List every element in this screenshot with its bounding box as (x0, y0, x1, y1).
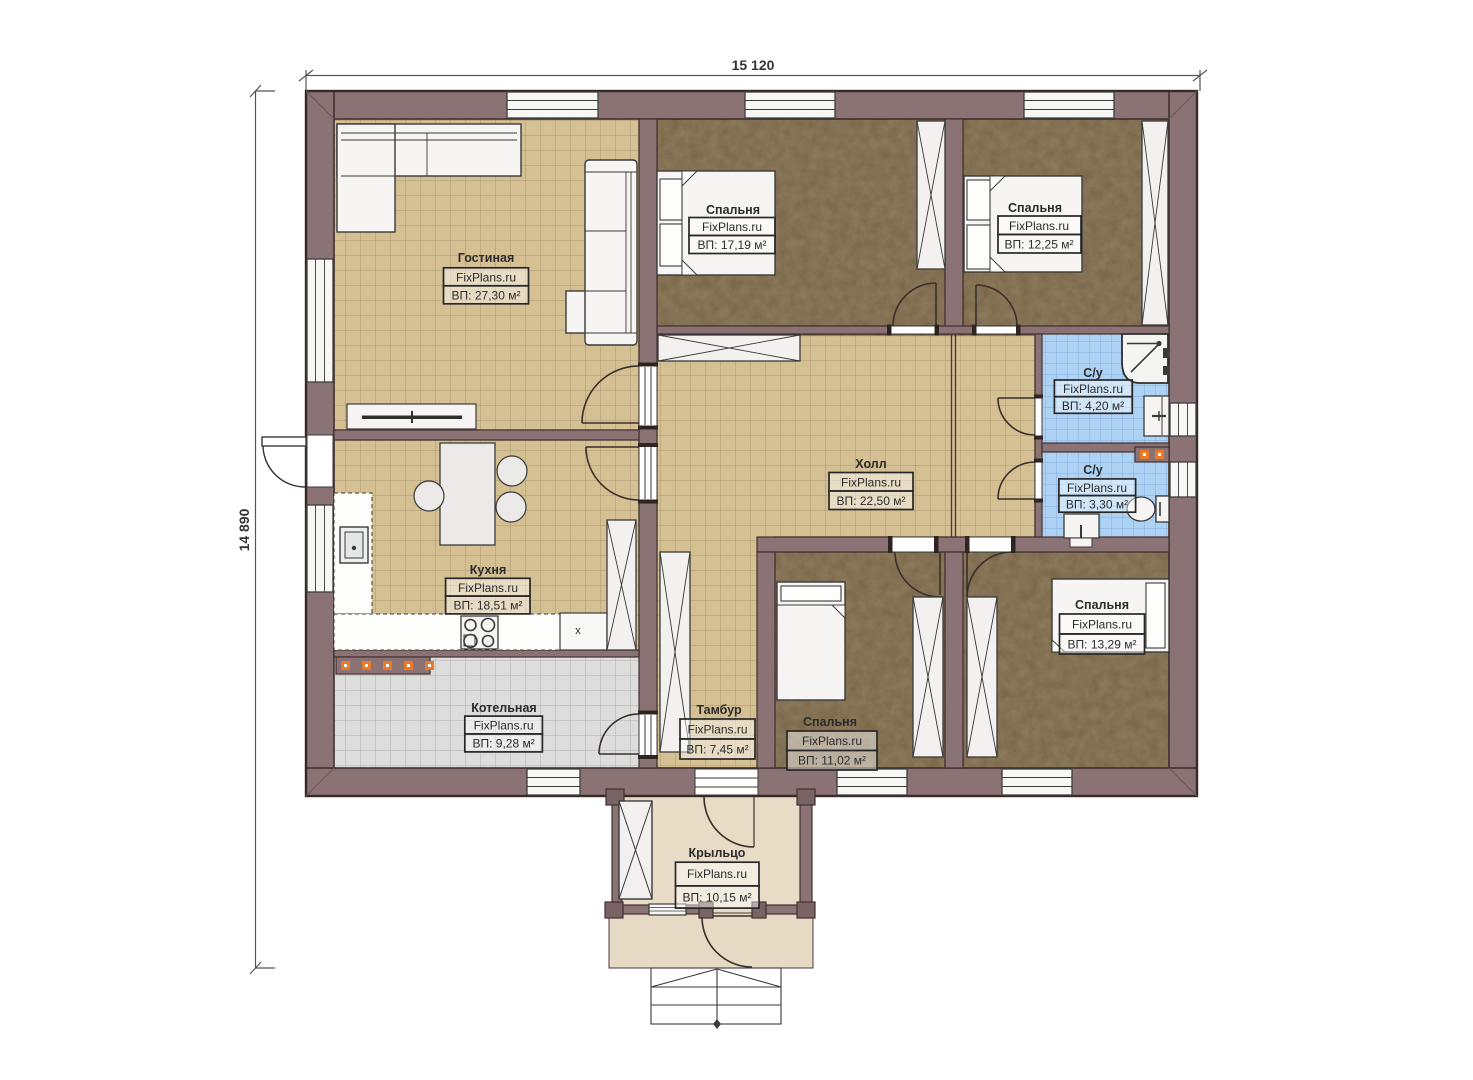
svg-text:ВП: 12,25 м²: ВП: 12,25 м² (1005, 238, 1074, 252)
svg-text:FixPlans.ru: FixPlans.ru (474, 719, 534, 733)
svg-text:Тамбур: Тамбур (696, 703, 742, 717)
svg-text:FixPlans.ru: FixPlans.ru (687, 723, 747, 737)
svg-text:Крыльцо: Крыльцо (689, 846, 746, 860)
svg-text:ВП: 7,45 м²: ВП: 7,45 м² (686, 743, 748, 757)
svg-text:Котельная: Котельная (471, 701, 536, 715)
svg-text:FixPlans.ru: FixPlans.ru (1067, 481, 1127, 495)
svg-text:ВП: 11,02 м²: ВП: 11,02 м² (798, 754, 866, 768)
svg-text:ВП: 4,20 м²: ВП: 4,20 м² (1062, 399, 1124, 413)
svg-text:FixPlans.ru: FixPlans.ru (456, 270, 516, 284)
svg-text:Гостиная: Гостиная (458, 251, 515, 265)
svg-text:FixPlans.ru: FixPlans.ru (841, 476, 901, 490)
svg-text:ВП: 10,15 м²: ВП: 10,15 м² (683, 891, 752, 905)
svg-text:ВП: 9,28 м²: ВП: 9,28 м² (472, 737, 534, 751)
svg-text:ВП: 3,30 м²: ВП: 3,30 м² (1066, 498, 1128, 512)
svg-text:FixPlans.ru: FixPlans.ru (702, 220, 762, 234)
svg-text:FixPlans.ru: FixPlans.ru (458, 581, 518, 595)
svg-text:ВП: 13,29 м²: ВП: 13,29 м² (1068, 638, 1137, 652)
svg-text:15 120: 15 120 (732, 57, 775, 73)
svg-text:FixPlans.ru: FixPlans.ru (687, 867, 747, 881)
svg-text:FixPlans.ru: FixPlans.ru (1072, 618, 1132, 632)
svg-text:FixPlans.ru: FixPlans.ru (802, 734, 862, 748)
svg-text:Холл: Холл (855, 457, 886, 471)
svg-text:FixPlans.ru: FixPlans.ru (1063, 382, 1123, 396)
svg-text:14 890: 14 890 (236, 508, 252, 551)
svg-text:ВП: 18,51 м²: ВП: 18,51 м² (454, 599, 523, 613)
svg-text:С/у: С/у (1083, 366, 1103, 380)
svg-text:ВП: 17,19 м²: ВП: 17,19 м² (698, 238, 767, 252)
svg-text:С/у: С/у (1083, 463, 1103, 477)
svg-text:ВП: 22,50 м²: ВП: 22,50 м² (837, 494, 906, 508)
svg-text:Спальня: Спальня (1075, 598, 1129, 612)
svg-text:x: x (575, 625, 581, 637)
svg-text:Спальня: Спальня (1008, 201, 1062, 215)
svg-text:FixPlans.ru: FixPlans.ru (1009, 219, 1069, 233)
svg-text:Кухня: Кухня (470, 563, 507, 577)
svg-text:Спальня: Спальня (803, 715, 857, 729)
svg-text:ВП: 27,30 м²: ВП: 27,30 м² (452, 288, 521, 302)
svg-text:Спальня: Спальня (706, 203, 760, 217)
